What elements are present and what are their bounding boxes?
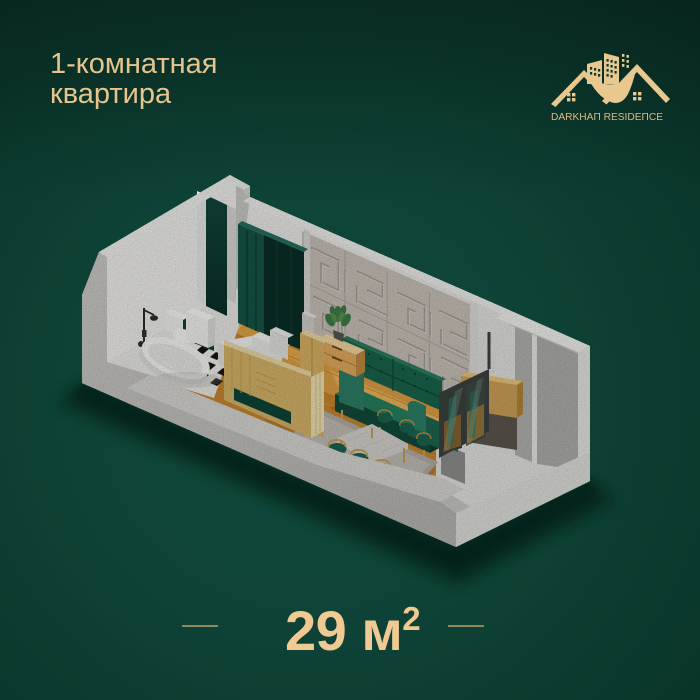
svg-text:квартира: квартира xyxy=(50,78,172,110)
svg-text:1-комнатная: 1-комнатная xyxy=(50,48,218,80)
svg-text:29 м2: 29 м2 xyxy=(285,599,420,662)
svg-text:DARKHAП RESIDEПCE: DARKHAП RESIDEПCE xyxy=(551,111,663,123)
